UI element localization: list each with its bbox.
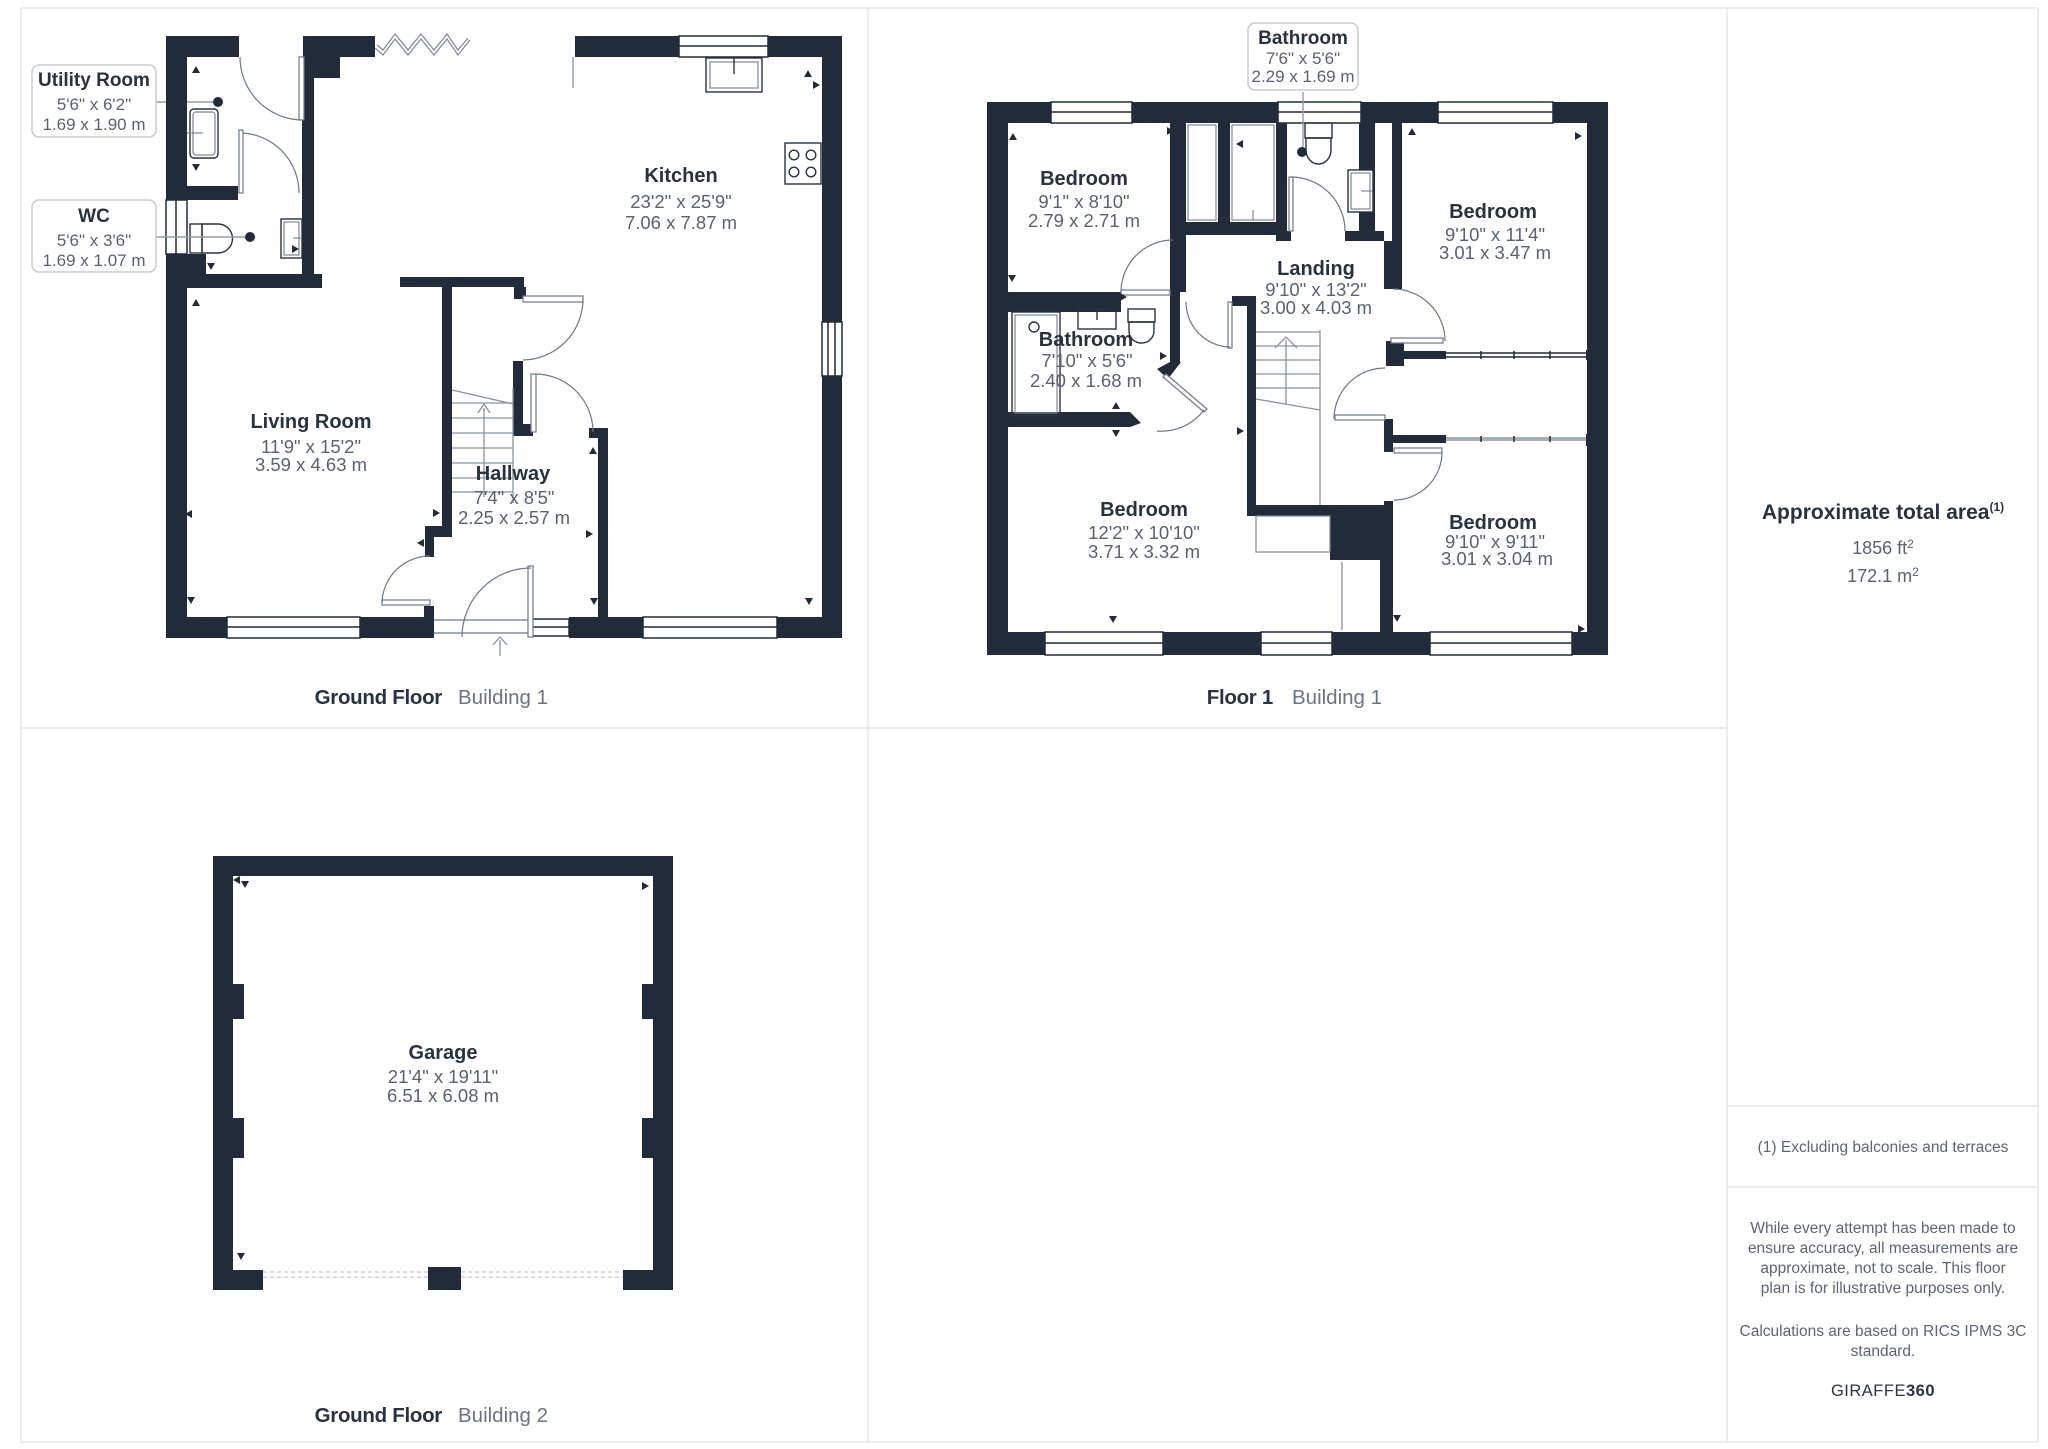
svg-text:3.00 x 4.03 m: 3.00 x 4.03 m — [1260, 297, 1372, 318]
svg-text:(1) Excluding balconies and te: (1) Excluding balconies and terraces — [1758, 1139, 2009, 1156]
svg-text:2.40 x 1.68 m: 2.40 x 1.68 m — [1030, 370, 1142, 391]
svg-text:Building 1: Building 1 — [458, 686, 548, 709]
svg-text:GIRAFFE360: GIRAFFE360 — [1831, 1382, 1935, 1400]
svg-text:Garage: Garage — [409, 1042, 478, 1064]
svg-text:9'1" x 8'10": 9'1" x 8'10" — [1038, 191, 1129, 212]
svg-text:Kitchen: Kitchen — [644, 165, 717, 187]
svg-text:3.01 x 3.04 m: 3.01 x 3.04 m — [1441, 548, 1553, 569]
svg-text:Floor 1: Floor 1 — [1207, 686, 1273, 709]
svg-text:12'2" x 10'10": 12'2" x 10'10" — [1088, 522, 1200, 543]
svg-text:23'2" x 25'9": 23'2" x 25'9" — [630, 191, 731, 212]
svg-text:Approximate total area(1): Approximate total area(1) — [1762, 500, 2004, 524]
svg-text:Landing: Landing — [1277, 258, 1355, 280]
svg-text:Building 1: Building 1 — [1292, 686, 1382, 709]
svg-text:While every attempt has been m: While every attempt has been made to — [1750, 1220, 2015, 1237]
svg-text:Bedroom: Bedroom — [1100, 499, 1188, 521]
svg-text:Bathroom: Bathroom — [1039, 329, 1133, 351]
svg-text:7'10" x 5'6": 7'10" x 5'6" — [1041, 350, 1132, 371]
svg-text:2.29 x 1.69 m: 2.29 x 1.69 m — [1251, 67, 1354, 86]
svg-text:172.1 m2: 172.1 m2 — [1847, 565, 1919, 586]
svg-text:Ground Floor: Ground Floor — [315, 1404, 443, 1427]
svg-text:2.25 x 2.57 m: 2.25 x 2.57 m — [458, 507, 570, 528]
svg-text:ensure accuracy, all measureme: ensure accuracy, all measurements are — [1748, 1240, 2018, 1257]
svg-text:plan is for illustrative purpo: plan is for illustrative purposes only. — [1761, 1280, 2005, 1297]
svg-text:Bedroom: Bedroom — [1040, 168, 1128, 190]
svg-text:7'4" x 8'5": 7'4" x 8'5" — [474, 487, 555, 508]
svg-text:approximate, not to scale. Thi: approximate, not to scale. This floor — [1760, 1260, 2005, 1277]
svg-text:6.51 x 6.08 m: 6.51 x 6.08 m — [387, 1085, 499, 1106]
svg-text:5'6" x 3'6": 5'6" x 3'6" — [57, 231, 131, 250]
svg-text:7.06 x 7.87 m: 7.06 x 7.87 m — [625, 212, 737, 233]
svg-text:7'6" x 5'6": 7'6" x 5'6" — [1266, 49, 1340, 68]
svg-text:3.71 x 3.32 m: 3.71 x 3.32 m — [1088, 541, 1200, 562]
svg-text:Living Room: Living Room — [250, 411, 371, 433]
svg-text:1.69 x 1.90 m: 1.69 x 1.90 m — [42, 115, 145, 134]
svg-text:3.59 x 4.63 m: 3.59 x 4.63 m — [255, 454, 367, 475]
svg-text:3.01 x 3.47 m: 3.01 x 3.47 m — [1439, 242, 1551, 263]
svg-text:2.79 x 2.71 m: 2.79 x 2.71 m — [1028, 210, 1140, 231]
svg-text:Calculations are based on RICS: Calculations are based on RICS IPMS 3C — [1740, 1323, 2027, 1340]
svg-text:21'4" x 19'11": 21'4" x 19'11" — [388, 1066, 498, 1087]
svg-text:Utility Room: Utility Room — [38, 70, 150, 91]
svg-text:1.69 x 1.07 m: 1.69 x 1.07 m — [42, 251, 145, 270]
svg-text:Building 2: Building 2 — [458, 1404, 548, 1427]
svg-text:standard.: standard. — [1851, 1343, 1916, 1360]
svg-text:Bedroom: Bedroom — [1449, 201, 1537, 223]
svg-text:Bathroom: Bathroom — [1258, 28, 1348, 49]
svg-text:1856 ft2: 1856 ft2 — [1852, 537, 1914, 558]
svg-text:Hallway: Hallway — [476, 463, 551, 485]
svg-text:WC: WC — [78, 206, 110, 227]
svg-text:Ground Floor: Ground Floor — [315, 686, 443, 709]
svg-text:5'6" x 6'2": 5'6" x 6'2" — [57, 95, 131, 114]
